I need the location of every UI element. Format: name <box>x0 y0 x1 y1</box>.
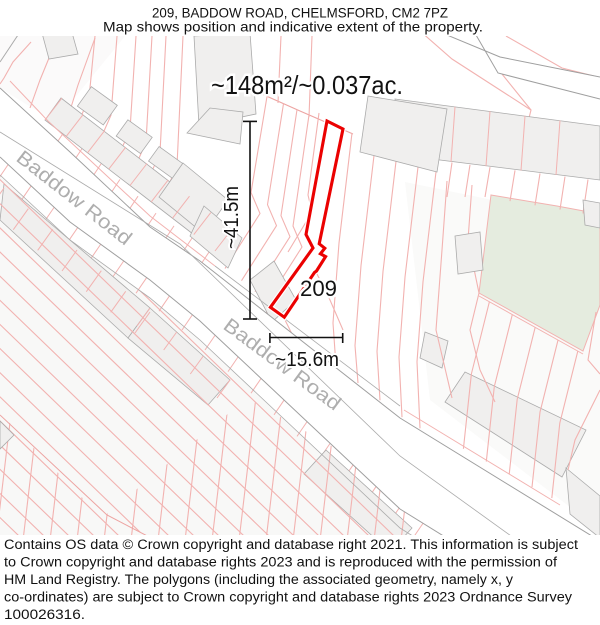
svg-text:~41.5m: ~41.5m <box>221 186 243 249</box>
svg-text:to Crown copyright and databas: to Crown copyright and database rights 2… <box>4 555 557 570</box>
svg-text:100026316.: 100026316. <box>4 607 85 622</box>
svg-text:Contains OS data © Crown copyr: Contains OS data © Crown copyright and d… <box>4 537 578 552</box>
svg-text:co-ordinates) are subject to C: co-ordinates) are subject to Crown copyr… <box>4 590 572 605</box>
svg-text:209: 209 <box>300 276 337 301</box>
svg-text:~15.6m: ~15.6m <box>275 349 339 371</box>
svg-text:HM Land Registry. The polygons: HM Land Registry. The polygons (includin… <box>4 572 513 587</box>
svg-text:~148m²/~0.037ac.: ~148m²/~0.037ac. <box>211 70 403 100</box>
svg-text:Map shows position and indicat: Map shows position and indicative extent… <box>103 19 483 35</box>
